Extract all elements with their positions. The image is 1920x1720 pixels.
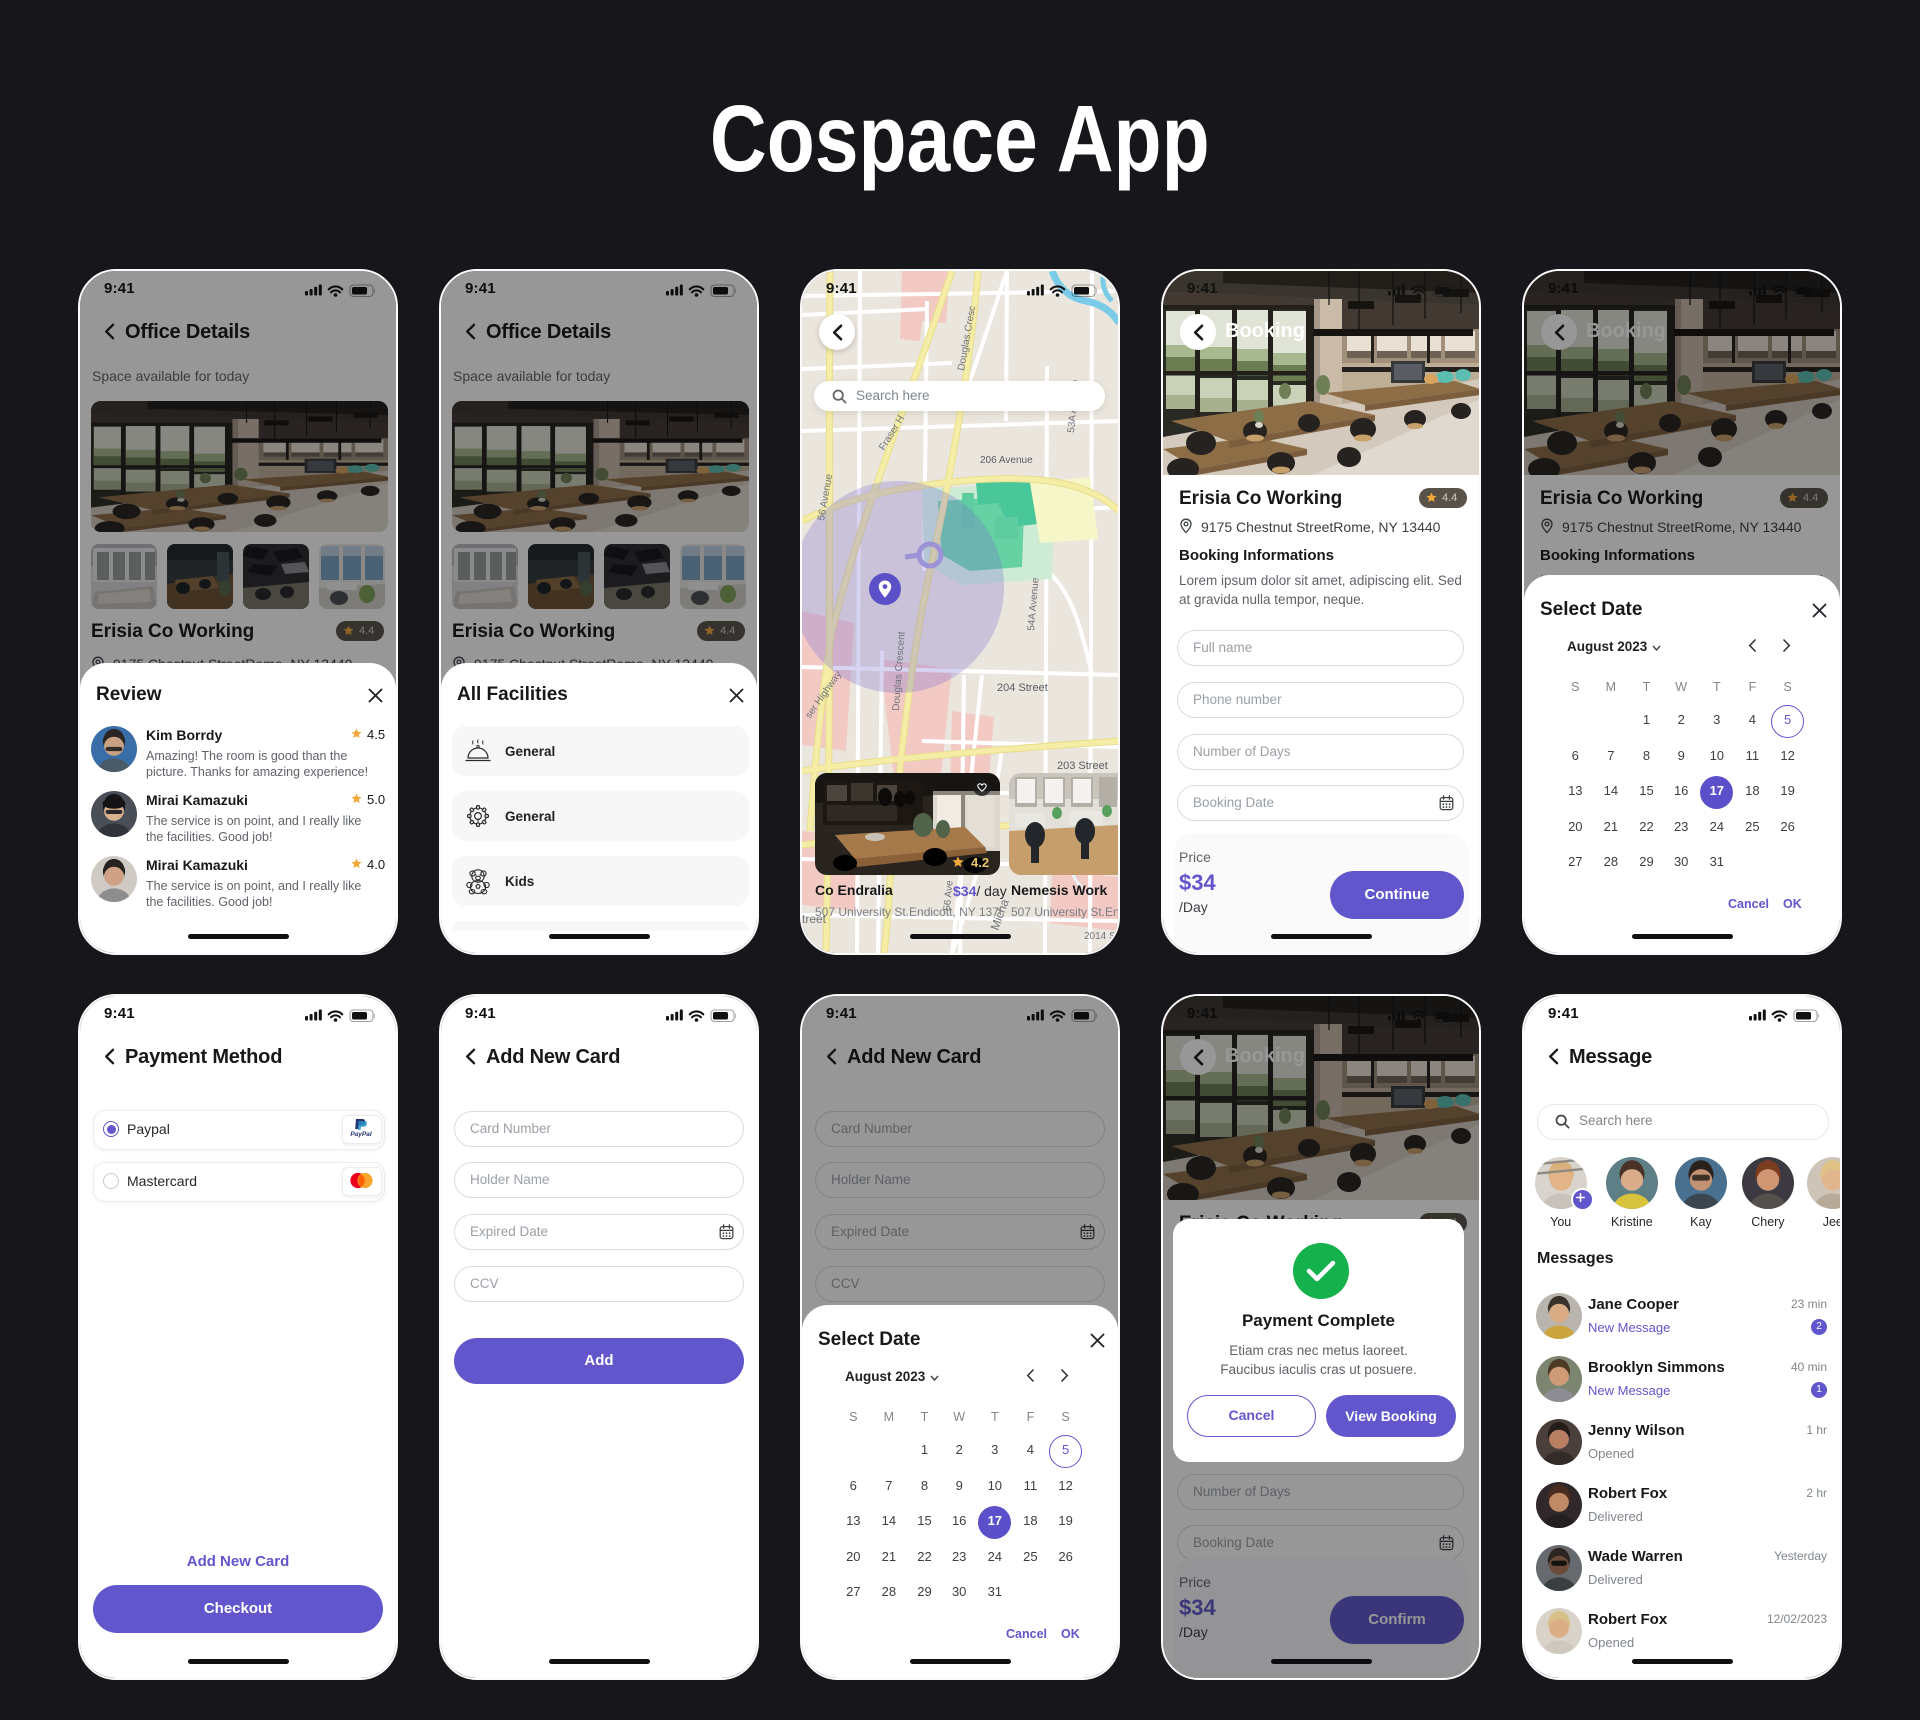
svg-text:206 Avenue: 206 Avenue bbox=[980, 455, 1033, 466]
svg-text:204 Street: 204 Street bbox=[997, 682, 1048, 694]
svg-text:203 Street: 203 Street bbox=[1057, 760, 1108, 772]
svg-text:2014 S: 2014 S bbox=[1084, 931, 1116, 942]
